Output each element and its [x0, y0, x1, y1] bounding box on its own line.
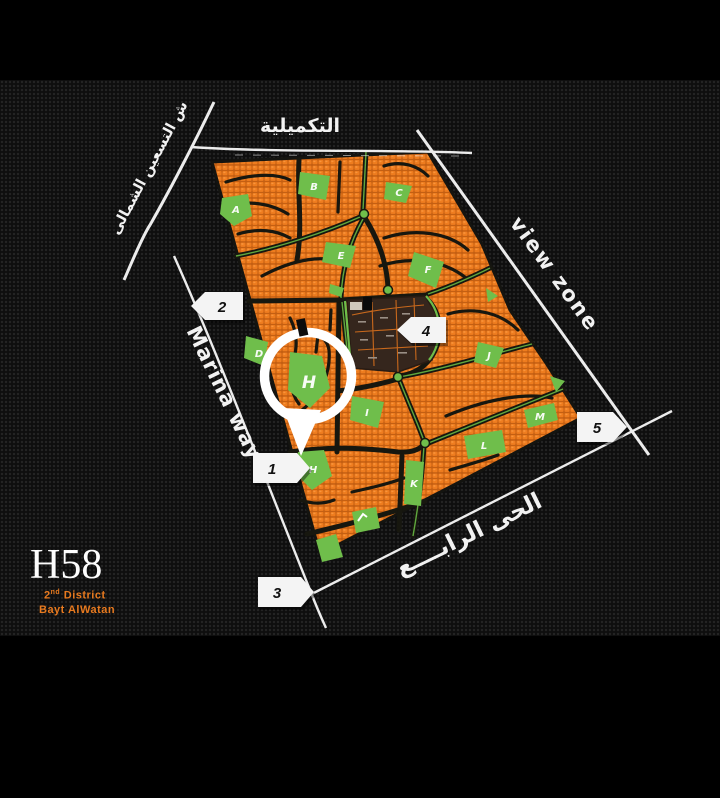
marker-2-number: 2	[217, 299, 227, 316]
mosque-plot	[350, 302, 362, 310]
section-label-h-highlight: H	[302, 373, 316, 393]
marker-5-number: 5	[593, 420, 602, 437]
section-label-f: F	[425, 265, 432, 276]
road-label-top: التكميلية	[260, 115, 340, 137]
marker-4-number: 4	[421, 323, 431, 340]
section-label-c: C	[395, 188, 403, 199]
landmark-building	[363, 297, 372, 310]
section-label-i: I	[365, 408, 369, 419]
marker-1-number: 1	[268, 461, 276, 478]
section-label-e: E	[338, 251, 345, 262]
section-label-k: K	[410, 479, 419, 490]
section-label-b: B	[310, 182, 318, 193]
district-code: H58	[30, 544, 115, 586]
marker-3-number: 3	[273, 585, 282, 602]
section-label-l: L	[481, 441, 487, 452]
project-name: Bayt AlWatan	[39, 603, 115, 617]
district-map: A B C D E F H I J K L M H	[0, 0, 720, 798]
legend: H58 2nd District Bayt AlWatan	[30, 544, 115, 617]
map-page: A B C D E F H I J K L M H	[0, 0, 720, 798]
district-subtitle: 2nd District	[44, 586, 115, 603]
road-label-northwest: ش التسعين الشمالى	[107, 99, 191, 238]
marker-2[interactable]: 2	[191, 292, 245, 323]
section-label-d: D	[255, 349, 263, 360]
section-label-a: A	[231, 205, 240, 216]
section-label-m: M	[535, 412, 545, 423]
